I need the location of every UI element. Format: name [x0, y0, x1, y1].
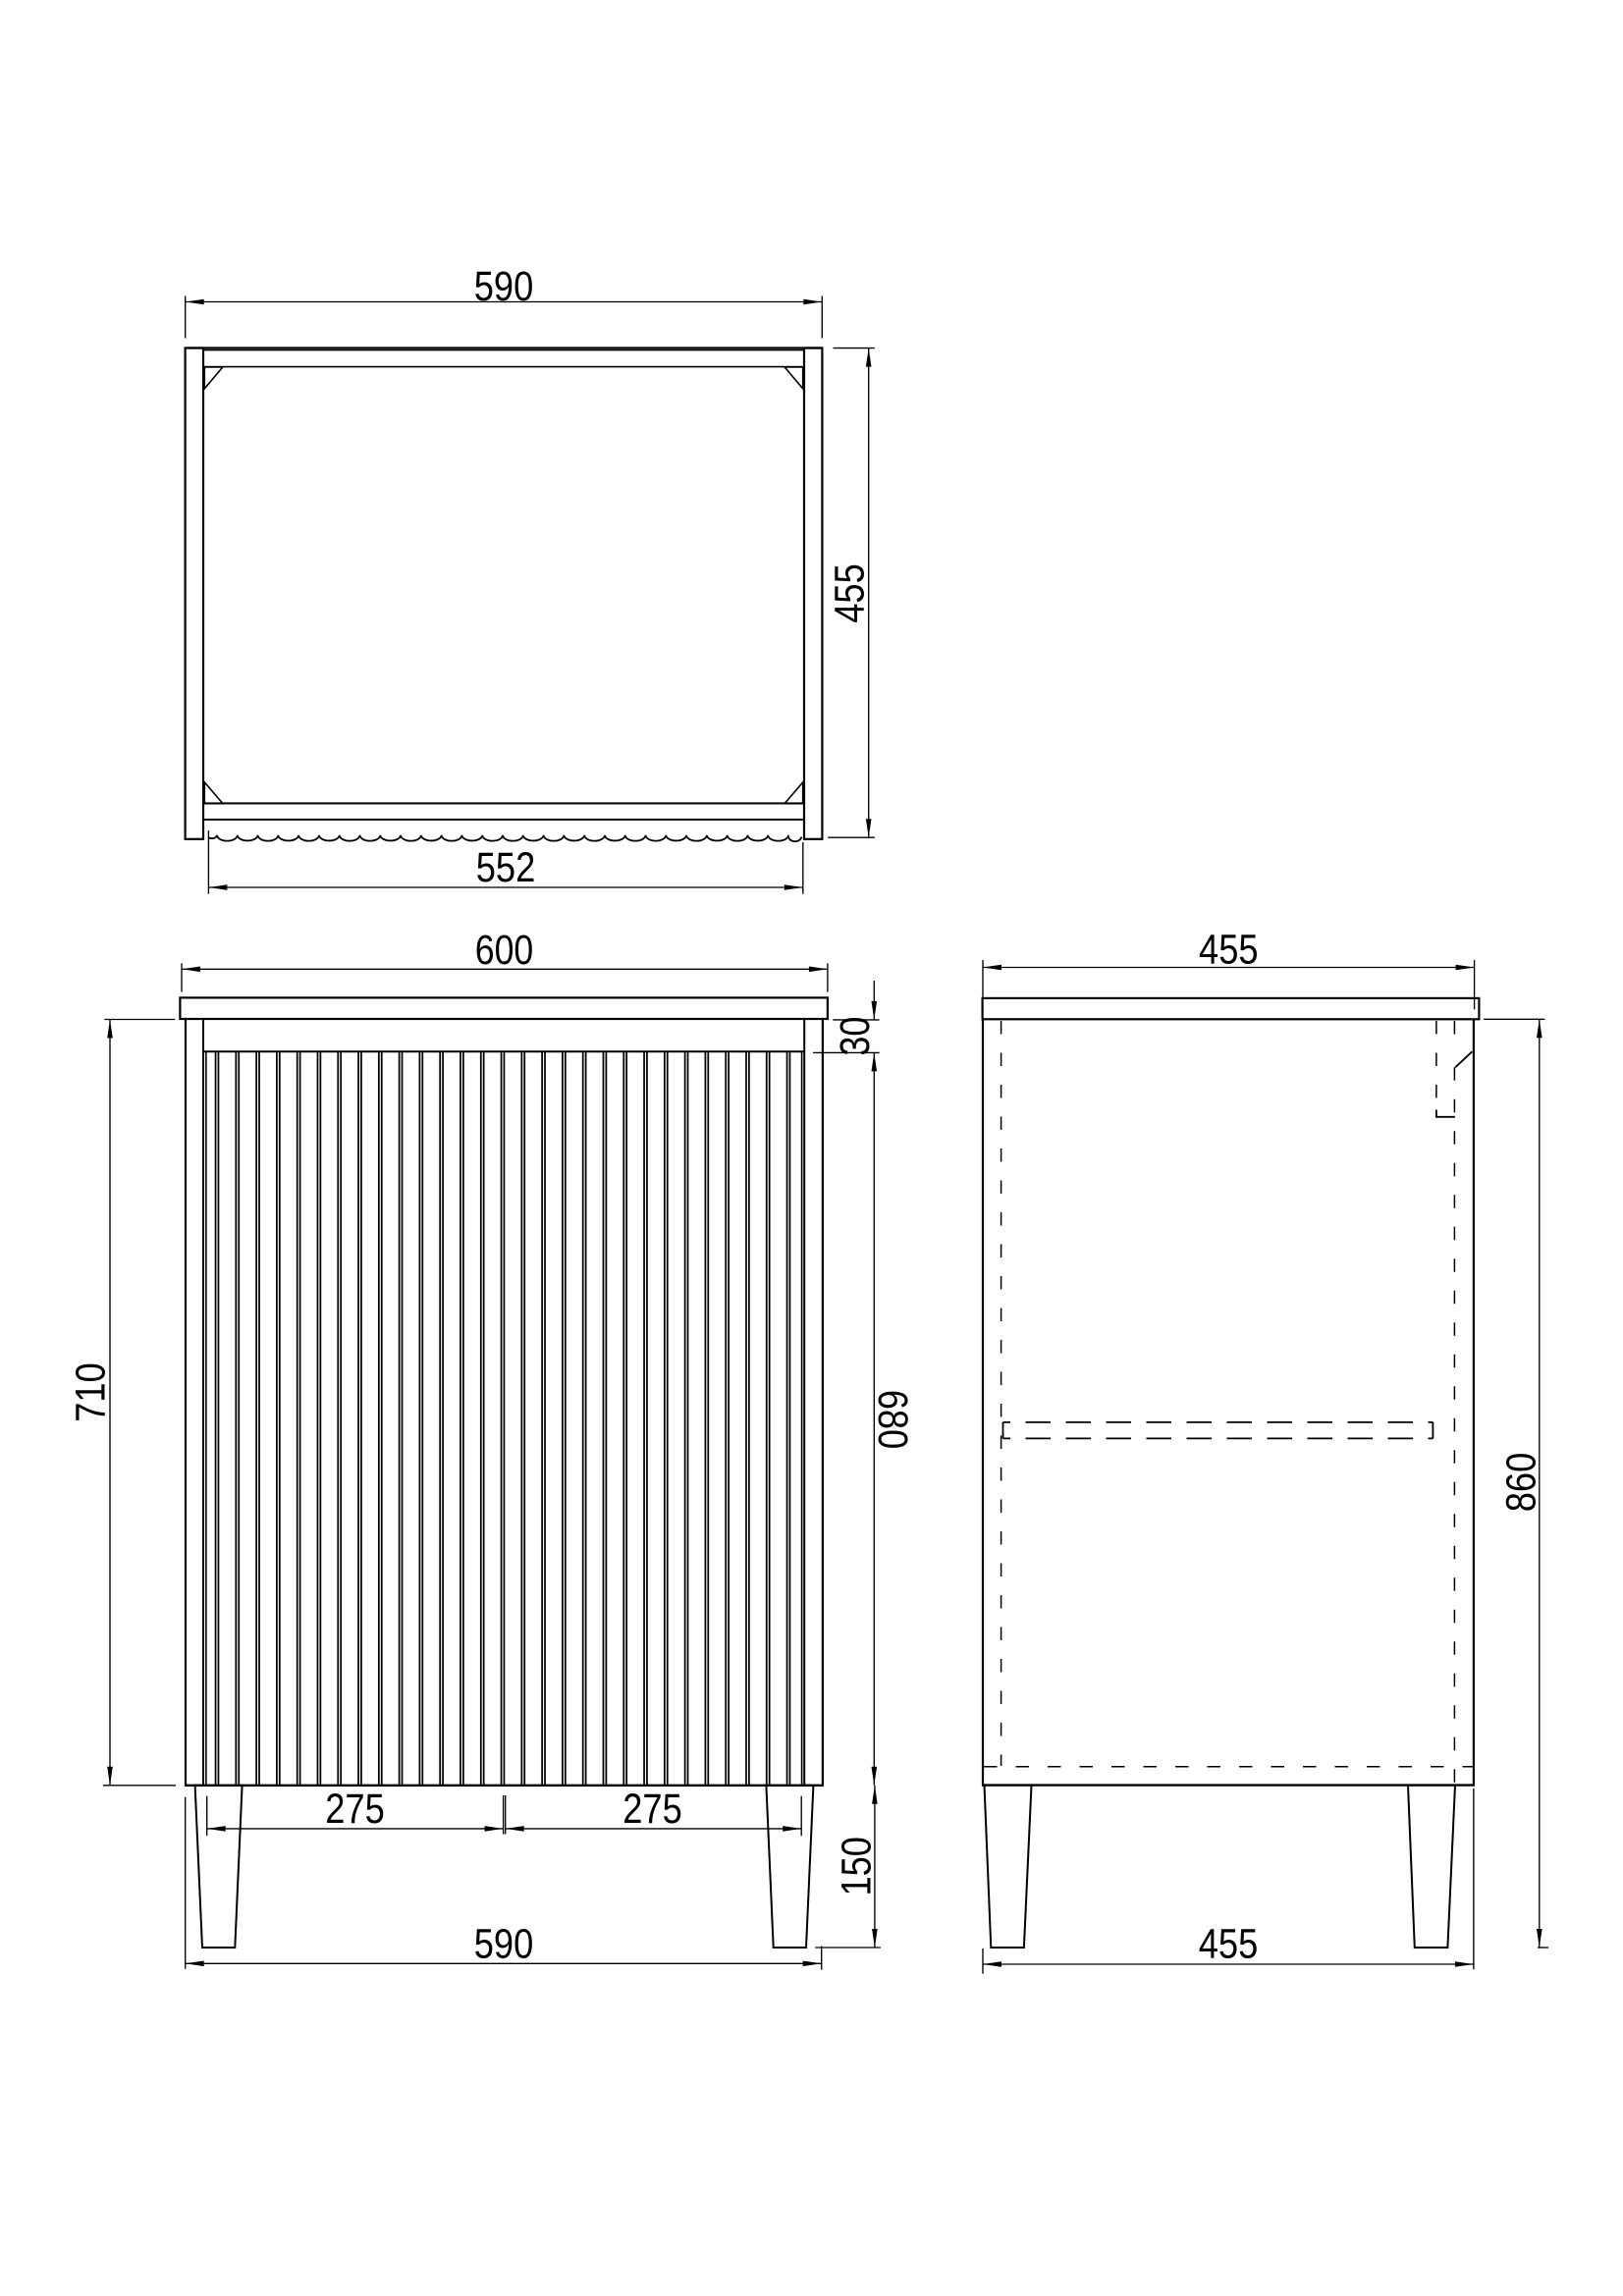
svg-text:590: 590: [474, 263, 534, 310]
svg-text:552: 552: [476, 844, 536, 891]
svg-text:455: 455: [826, 563, 873, 623]
svg-text:600: 600: [475, 927, 534, 974]
svg-text:860: 860: [1497, 1453, 1544, 1513]
svg-text:30: 30: [832, 1017, 879, 1056]
svg-text:455: 455: [1199, 1921, 1259, 1968]
svg-text:275: 275: [622, 1786, 682, 1833]
svg-text:710: 710: [68, 1362, 115, 1422]
svg-text:150: 150: [833, 1837, 880, 1896]
svg-text:590: 590: [474, 1921, 534, 1968]
svg-text:680: 680: [869, 1390, 916, 1450]
svg-text:275: 275: [325, 1786, 385, 1833]
svg-text:455: 455: [1199, 927, 1259, 974]
